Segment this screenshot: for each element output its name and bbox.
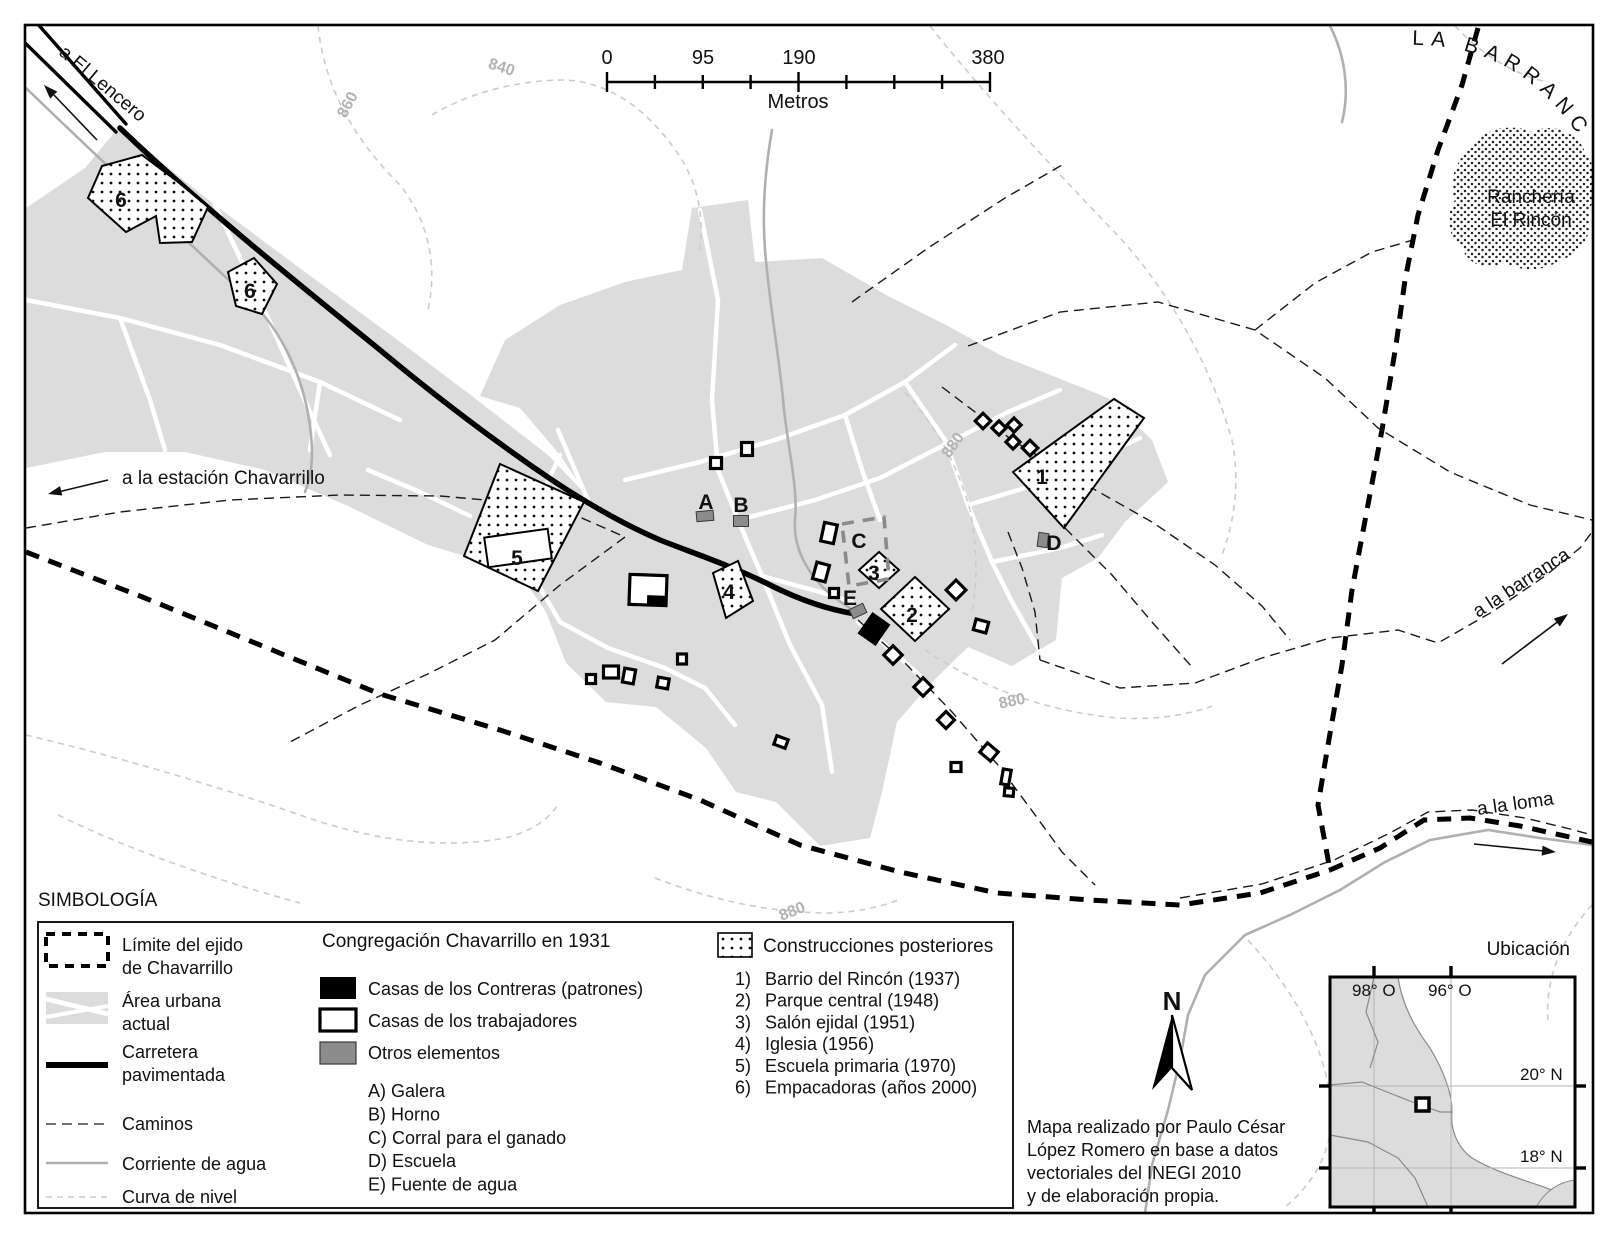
worker-house [711,458,722,469]
text-item: Iglesia (1956) [765,1034,874,1054]
marker-label: D [1046,532,1061,555]
text-item: Empacadoras (años 2000) [765,1078,977,1098]
worker-house [622,668,635,684]
direction-arrow [54,95,97,140]
legend-area-1: Área urbana [122,991,222,1011]
legend-area-2: actual [122,1014,170,1034]
marker-label: 1 [1036,466,1048,489]
inset-land-shape [1330,977,1575,1207]
text-item: Parque central (1948) [765,991,939,1011]
inset-map: Ubicación [1319,939,1586,1218]
worker-house [980,743,998,761]
inset-lat-18: 18° N [1520,1147,1563,1166]
inset-title: Ubicación [1487,939,1570,960]
camino [1255,238,1420,330]
attribution: Mapa realizado por Paulo CésarLópez Rome… [1027,1117,1285,1206]
label-estacion: a la estación Chavarrillo [122,468,325,489]
contour-line [318,26,432,310]
inset-land [1330,977,1575,1207]
camino [1180,810,1592,898]
legend-carretera-1: Carretera [122,1042,199,1062]
worker-house [830,589,839,598]
worker-house [774,736,788,749]
map-svg: a El Lencero a la estación Chavarrillo L… [0,0,1616,1244]
direction-arrow [1474,844,1544,851]
legend-limite-1: Límite del ejido [122,935,243,955]
ejido-boundary-segment [1318,28,1478,870]
swatch-area-urbana [46,992,108,1024]
worker-house [742,443,753,456]
worker-house [604,666,619,678]
scale-bar [607,72,990,92]
legend-title: SIMBOLOGÍA [38,890,158,911]
swatch-posteriores [718,933,752,957]
text-item: B) Horno [368,1104,440,1124]
camino [1040,532,1592,688]
legend-contreras: Casas de los Contreras (patrones) [368,979,643,999]
swatch-trabajadores [320,1009,356,1031]
marker-label: 190 [782,47,815,69]
inset-lon-98: 98° O [1352,981,1396,1000]
label-a-la-barranca: a la barranca [1469,544,1574,622]
marker-label: 380 [971,47,1004,69]
direction-arrow [58,480,108,492]
legend-otros: Otros elementos [368,1043,500,1063]
text-item: Salón ejidal (1951) [765,1012,915,1032]
worker-house [821,522,838,543]
worker-house [813,562,830,582]
patron-house [647,595,667,607]
label-rancheria-2: El Rincón [1490,210,1571,231]
scale-unit: Metros [767,91,828,113]
worker-house [951,763,961,772]
marker-label: 6 [244,280,256,303]
worker-house [1004,788,1014,797]
worker-house [938,712,955,729]
worker-house [657,677,670,689]
inset-lon-96: 96° O [1428,981,1472,1000]
marker-label: 840 [486,56,517,80]
text-item: 4) [735,1034,751,1054]
legend-caminos: Caminos [122,1114,193,1134]
legend-congregacion-title: Congregación Chavarrillo en 1931 [322,931,610,952]
map-figure: a El Lencero a la estación Chavarrillo L… [0,0,1616,1244]
text-item: López Romero en base a datos [1027,1140,1278,1160]
text-item: A) Galera [368,1081,446,1101]
text-item: Barrio del Rincón (1937) [765,969,960,989]
text-item: 2) [735,991,751,1011]
marker-label: 4 [723,581,735,604]
label-rancheria-1: Ranchería [1487,187,1575,208]
direction-arrow [48,486,62,495]
marker-label: 6 [115,189,127,212]
marker-label: 2 [906,604,918,627]
contour-line [655,878,898,913]
text-item: 3) [735,1012,751,1032]
marker-label: A [698,491,713,514]
marker-label: 95 [692,47,714,69]
inset-lat-20: 20° N [1520,1065,1563,1084]
worker-house [973,619,988,633]
marker-label: 0 [601,47,612,69]
legend-trabajadores: Casas de los trabajadores [368,1011,577,1031]
text-item: Escuela primaria (1970) [765,1056,956,1076]
legend-carretera-2: pavimentada [122,1065,226,1085]
camino [852,165,1062,302]
ejido-boundary-segment [1330,818,1592,870]
legend-limite-2: de Chavarrillo [122,958,233,978]
legend-posteriores-title: Construcciones posteriores [763,936,993,957]
label-la-barranca: LA BARRANCA [0,0,1596,142]
label-a-la-loma: a la loma [1476,788,1556,820]
scale-bar-labels: 095190380 [601,47,1004,69]
direction-arrow [1502,620,1560,664]
text-item: E) Fuente de agua [368,1175,518,1195]
text-item: 6) [735,1078,751,1098]
marker-label: 880 [777,899,808,925]
text-item: vectoriales del INEGI 2010 [1027,1163,1241,1183]
text-item: D) Escuela [368,1151,457,1171]
text-item: 5) [735,1056,751,1076]
marker-label: C [851,530,866,553]
marker-label: 5 [511,547,523,570]
text-item: Mapa realizado por Paulo César [1027,1117,1285,1137]
legend-curva: Curva de nivel [122,1187,237,1207]
stream [1330,26,1346,122]
other-element [734,516,749,527]
north-label: N [1163,986,1182,1016]
marker-label: 860 [334,89,362,121]
legend-corriente: Corriente de agua [122,1154,267,1174]
marker-label: 880 [997,690,1027,712]
text-item: C) Corral para el ganado [368,1128,566,1148]
direction-arrow [1542,846,1556,856]
north-arrow-left [1152,1015,1172,1090]
worker-house [587,675,596,684]
contour-line [26,735,558,843]
contour-line [432,80,701,255]
inset-location-marker [1416,1098,1429,1111]
marker-label: E [843,587,857,610]
swatch-contreras [320,977,356,999]
swatch-otros [320,1042,356,1064]
text-item: y de elaboración propia. [1027,1186,1219,1206]
direction-arrow [1554,614,1568,627]
contour-line [1548,905,1592,1022]
north-arrow: N [1152,986,1192,1090]
marker-label: B [733,494,748,517]
text-item: 1) [735,969,751,989]
marker-label: 3 [868,562,880,585]
worker-house [678,654,687,664]
worker-house [1001,769,1011,785]
